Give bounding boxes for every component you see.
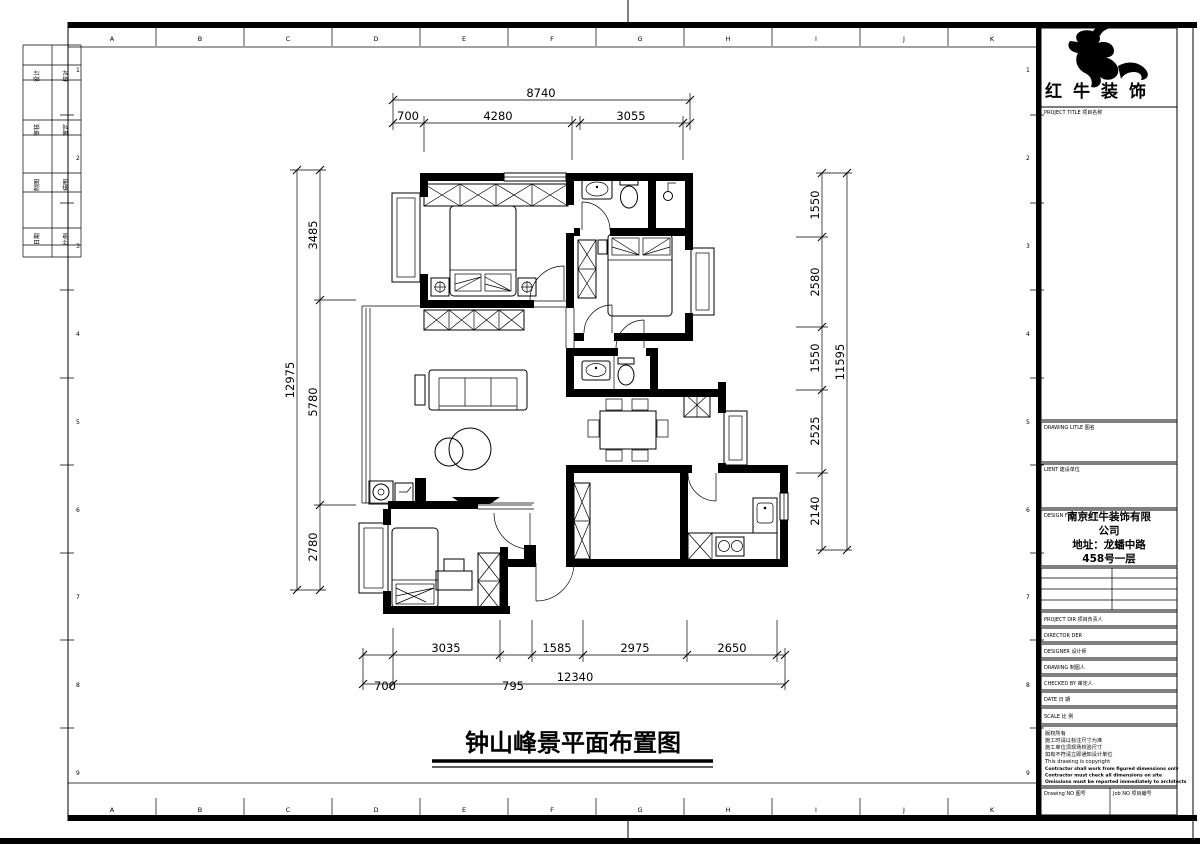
row-number: 7 bbox=[1026, 594, 1030, 601]
copyright-line: 版权所有 bbox=[1045, 729, 1066, 737]
project-title-label: PROJECT TITLE 项目名称 bbox=[1044, 109, 1102, 116]
drawing-sheet: A B C D E F G H I J K A B C D E F G H I … bbox=[0, 0, 1200, 844]
grid-letters-bottom: A B C D E F G H I J K bbox=[110, 806, 995, 814]
copyright-line: 施工单位须现场校验尺寸 bbox=[1045, 743, 1102, 751]
dim-right: 1550 2580 1550 2525 2140 11595 bbox=[796, 169, 852, 554]
page-title: 钟山峰景平面布置图 bbox=[465, 729, 681, 757]
row-numbers-right: 1 2 3 4 5 6 7 8 9 bbox=[1026, 67, 1030, 777]
dim-label: 2975 bbox=[620, 641, 649, 655]
dining-table bbox=[600, 411, 656, 449]
coffee-table bbox=[449, 428, 491, 470]
grid-letter: H bbox=[726, 806, 731, 814]
bed-bedroom2 bbox=[598, 234, 672, 316]
dim-label: 12975 bbox=[283, 362, 297, 399]
dim-bottom: 3035 1585 2975 2650 700 795 12340 bbox=[359, 620, 789, 693]
grid-letter: I bbox=[815, 35, 817, 43]
row-number: 8 bbox=[76, 682, 80, 689]
dim-label: 1550 bbox=[808, 343, 822, 372]
grid-letter: K bbox=[990, 806, 995, 814]
drawing-no-box: Drawing NO 图号 Job NO 项目编号 bbox=[1041, 788, 1177, 815]
sofa bbox=[429, 370, 527, 410]
chair bbox=[606, 399, 622, 410]
dim-top: 8740 700 4280 3055 bbox=[389, 86, 694, 160]
project-dir-label: PROJECT DIR 项目负责人 bbox=[1044, 616, 1103, 623]
chair bbox=[606, 450, 622, 461]
dim-label: 5780 bbox=[306, 387, 320, 416]
chair bbox=[657, 420, 668, 437]
dim-left: 12975 3485 5780 2780 bbox=[283, 166, 356, 594]
nightstand bbox=[598, 240, 607, 254]
signoff-label: 审核 bbox=[33, 124, 41, 136]
bay-window-dining bbox=[724, 411, 747, 465]
row-number: 6 bbox=[1026, 507, 1030, 514]
grid-letter: F bbox=[550, 35, 554, 43]
signoff-label: 日期 bbox=[33, 233, 41, 245]
dim-label: 700 bbox=[374, 679, 396, 693]
bay-window-bedroom3 bbox=[359, 523, 388, 593]
brand-name: 红牛装饰 bbox=[1045, 81, 1157, 102]
drawing-no-label: Drawing NO 图号 bbox=[1044, 791, 1086, 797]
grid-letter: C bbox=[286, 35, 291, 43]
bedroom3-furniture bbox=[392, 528, 472, 608]
grid-letter: A bbox=[110, 806, 115, 814]
grid-letter: B bbox=[198, 806, 202, 814]
dining-set bbox=[588, 399, 668, 461]
desk bbox=[436, 571, 472, 590]
dim-label: 2580 bbox=[808, 267, 822, 296]
dim-label: 8740 bbox=[526, 86, 555, 100]
cabinet-hall bbox=[574, 483, 590, 559]
dim-label: 2650 bbox=[717, 641, 746, 655]
chair bbox=[632, 450, 648, 461]
dim-label: 12340 bbox=[557, 670, 594, 684]
copyright-line: Omissions must be reported immediately t… bbox=[1045, 779, 1187, 785]
copyright-line: This drawing is copyright bbox=[1044, 759, 1110, 765]
row-number: 5 bbox=[76, 419, 80, 426]
drawing-by-label: DRAWING 制图人 bbox=[1044, 664, 1085, 671]
living-room-furniture bbox=[415, 370, 532, 505]
dim-label: 1585 bbox=[542, 641, 571, 655]
bull-logo-icon bbox=[1068, 25, 1147, 88]
dim-label: 700 bbox=[397, 109, 419, 123]
wardrobe-bedroom2 bbox=[578, 240, 596, 298]
grid-letter: D bbox=[373, 806, 378, 814]
scale-label: SCALE 比 例 bbox=[1044, 713, 1073, 720]
signoff-strip: 设计 校对 审核 审定 制图 描图 日期 比例 bbox=[23, 45, 81, 257]
row-numbers-left: 1 2 3 4 5 6 7 8 9 bbox=[76, 67, 80, 777]
bathroom1-fixtures bbox=[582, 178, 676, 208]
bay-window-bedroom2 bbox=[691, 248, 714, 315]
grid-letter: I bbox=[815, 806, 817, 814]
kitchen-fixtures bbox=[688, 498, 777, 560]
grid-letter: E bbox=[462, 806, 466, 814]
wardrobe-bedroom3 bbox=[478, 553, 500, 609]
grid-letter: G bbox=[637, 35, 642, 43]
logo-box: 红牛装饰 bbox=[1041, 25, 1177, 107]
firm-name-line1: 南京红牛装饰有限 bbox=[1067, 510, 1151, 523]
signoff-label: 审定 bbox=[62, 124, 70, 136]
signoff-label: 校对 bbox=[62, 70, 70, 82]
director-label: DIRECTOR DER bbox=[1044, 633, 1083, 639]
dim-label: 3485 bbox=[306, 220, 320, 249]
row-number: 2 bbox=[76, 155, 80, 162]
dim-label: 2780 bbox=[306, 532, 320, 561]
dim-label: 795 bbox=[502, 679, 524, 693]
grid-letter: J bbox=[902, 806, 905, 814]
toilet bbox=[618, 358, 634, 385]
row-number: 4 bbox=[1026, 331, 1030, 338]
signoff-label: 比例 bbox=[62, 233, 70, 245]
grid-letter: A bbox=[110, 35, 115, 43]
balcony-glazing bbox=[362, 306, 420, 503]
grid-letter: E bbox=[462, 35, 466, 43]
copyright-line: 如有不符请立即通知设计单位 bbox=[1045, 750, 1112, 758]
job-no-label: Job NO 项目编号 bbox=[1112, 790, 1152, 797]
bathroom2-fixtures bbox=[582, 356, 634, 389]
chair bbox=[588, 420, 599, 437]
grid-letter: J bbox=[902, 35, 905, 43]
grid-letter: G bbox=[637, 806, 642, 814]
checked-by-label: CHECKED BY 审定人 bbox=[1044, 680, 1093, 687]
row-number: 8 bbox=[1026, 682, 1030, 689]
dim-label: 1550 bbox=[808, 190, 822, 219]
cabinet-living bbox=[424, 310, 524, 330]
row-number: 6 bbox=[76, 507, 80, 514]
copyright-line: Contractor must check all dimensions on … bbox=[1045, 773, 1162, 779]
stove bbox=[716, 537, 744, 556]
row-number: 3 bbox=[1026, 243, 1030, 250]
dim-label: 3035 bbox=[431, 641, 460, 655]
grid-letter: H bbox=[726, 35, 731, 43]
grid-letters-top: A B C D E F G H I J K bbox=[110, 35, 995, 43]
chair bbox=[632, 399, 648, 410]
firm-address-line2: 458号一层 bbox=[1082, 553, 1136, 565]
dim-label: 3055 bbox=[616, 109, 645, 123]
row-number: 3 bbox=[76, 243, 80, 250]
client-label: LIENT 建设单位 bbox=[1044, 466, 1080, 473]
date-label: DATE 日 期 bbox=[1044, 697, 1070, 703]
dim-label: 2525 bbox=[808, 416, 822, 445]
monitor bbox=[444, 559, 464, 571]
kitchen-sink bbox=[757, 503, 773, 523]
signoff-label: 设计 bbox=[33, 70, 41, 82]
row-number: 4 bbox=[76, 331, 80, 338]
dim-label: 4280 bbox=[483, 109, 512, 123]
row-number: 2 bbox=[1026, 155, 1030, 162]
side-table bbox=[415, 375, 425, 405]
plan-title: 钟山峰景平面布置图 bbox=[432, 729, 713, 767]
row-number: 1 bbox=[1026, 67, 1030, 74]
toilet bbox=[620, 178, 638, 208]
bed-master bbox=[431, 206, 536, 296]
revision-table bbox=[1041, 568, 1177, 610]
drawing-title-label: DRAWING LITLE 图名 bbox=[1044, 424, 1095, 431]
row-number: 9 bbox=[76, 770, 80, 777]
grid-letter: B bbox=[198, 35, 202, 43]
dim-label: 11595 bbox=[833, 344, 847, 381]
grid-letter: K bbox=[990, 35, 995, 43]
grid-letter: D bbox=[373, 35, 378, 43]
copyright-line: 施工时请以标注尺寸为准 bbox=[1045, 736, 1102, 744]
copyright-line: Contractor shall work from figured dimen… bbox=[1045, 766, 1179, 772]
row-number: 5 bbox=[1026, 419, 1030, 426]
bay-window-master bbox=[392, 193, 420, 282]
grid-letter: C bbox=[286, 806, 291, 814]
firm-address-line1: 地址：龙蟠中路 bbox=[1072, 538, 1146, 551]
signoff-label: 描图 bbox=[62, 179, 70, 191]
dim-label: 2140 bbox=[808, 496, 822, 525]
row-number: 9 bbox=[1026, 770, 1030, 777]
designer-label: DESIGNER 设计师 bbox=[1044, 648, 1087, 655]
floor-plan: 8740 700 4280 3055 12975 3485 5780 2780 … bbox=[283, 86, 852, 767]
copyright-box: 版权所有 施工时请以标注尺寸为准 施工单位须现场校验尺寸 如有不符请立即通知设计… bbox=[1041, 726, 1187, 786]
design-firm-box: DESIGN FIRM 设计单位 南京红牛装饰有限 公司 地址：龙蟠中路 458… bbox=[1041, 510, 1177, 566]
firm-name-line2: 公司 bbox=[1099, 525, 1120, 537]
row-number: 7 bbox=[76, 594, 80, 601]
laundry-corner bbox=[369, 481, 413, 504]
grid-letter: F bbox=[550, 806, 554, 814]
shower bbox=[664, 183, 677, 201]
row-number: 1 bbox=[76, 67, 80, 74]
wardrobe-master bbox=[424, 184, 568, 206]
laundry-sink bbox=[395, 483, 413, 502]
signoff-label: 制图 bbox=[33, 179, 41, 191]
title-block: 红牛装饰 PROJECT TITLE 项目名称 DRAWING LITLE 图名… bbox=[1041, 25, 1187, 815]
fridge bbox=[684, 393, 710, 417]
